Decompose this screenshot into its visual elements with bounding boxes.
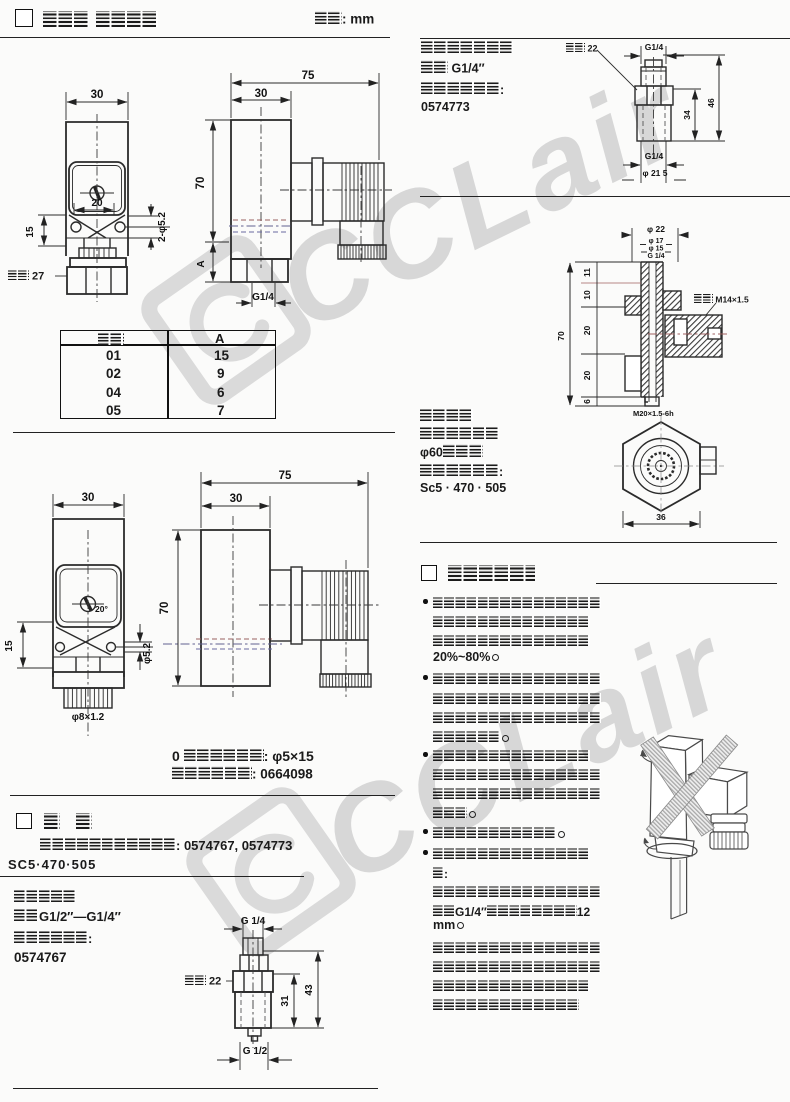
svg-text:46: 46 <box>706 98 716 108</box>
svg-text:φ 17: φ 17 <box>649 238 664 245</box>
svg-text:31: 31 <box>280 995 291 1007</box>
svg-text:M20×1.5-6h: M20×1.5-6h <box>633 409 674 418</box>
svg-text:70: 70 <box>556 331 566 341</box>
svg-text:36: 36 <box>656 512 666 522</box>
svg-text:15: 15 <box>4 640 15 652</box>
svg-text:φ 15: φ 15 <box>649 246 664 253</box>
svg-text:G1/4: G1/4 <box>645 151 664 161</box>
svg-text:G1/4: G1/4 <box>645 42 664 52</box>
svg-text:30: 30 <box>82 492 95 504</box>
svg-text:75: 75 <box>279 470 292 482</box>
svg-text:34: 34 <box>682 110 692 120</box>
svg-text:φ8×1.2: φ8×1.2 <box>72 712 105 723</box>
svg-text:20: 20 <box>582 371 592 381</box>
svg-text:G 1/4: G 1/4 <box>647 253 664 260</box>
svg-text:6: 6 <box>582 399 592 404</box>
svg-text:30: 30 <box>230 493 243 505</box>
svg-text:30: 30 <box>255 88 268 100</box>
svg-text:φ 21 5: φ 21 5 <box>643 168 668 178</box>
svg-text:10: 10 <box>582 290 592 300</box>
svg-text:20: 20 <box>582 326 592 336</box>
svg-text:75: 75 <box>302 70 315 82</box>
svg-text:70: 70 <box>159 602 171 615</box>
svg-text:G 1/2: G 1/2 <box>243 1046 268 1057</box>
svg-text:20°: 20° <box>95 604 108 614</box>
svg-text:A: A <box>196 260 207 267</box>
svg-text:φ5.2: φ5.2 <box>142 643 153 664</box>
svg-text:G 1/4: G 1/4 <box>241 916 266 927</box>
svg-text:43: 43 <box>304 984 315 996</box>
svg-text:φ 22: φ 22 <box>647 224 665 234</box>
svg-text:70: 70 <box>195 177 207 190</box>
svg-text:11: 11 <box>582 268 592 277</box>
svg-text:G1/4: G1/4 <box>252 292 274 303</box>
svg-text:30: 30 <box>91 89 104 101</box>
svg-text:2-φ5.2: 2-φ5.2 <box>157 212 168 242</box>
svg-text:15: 15 <box>25 226 36 238</box>
